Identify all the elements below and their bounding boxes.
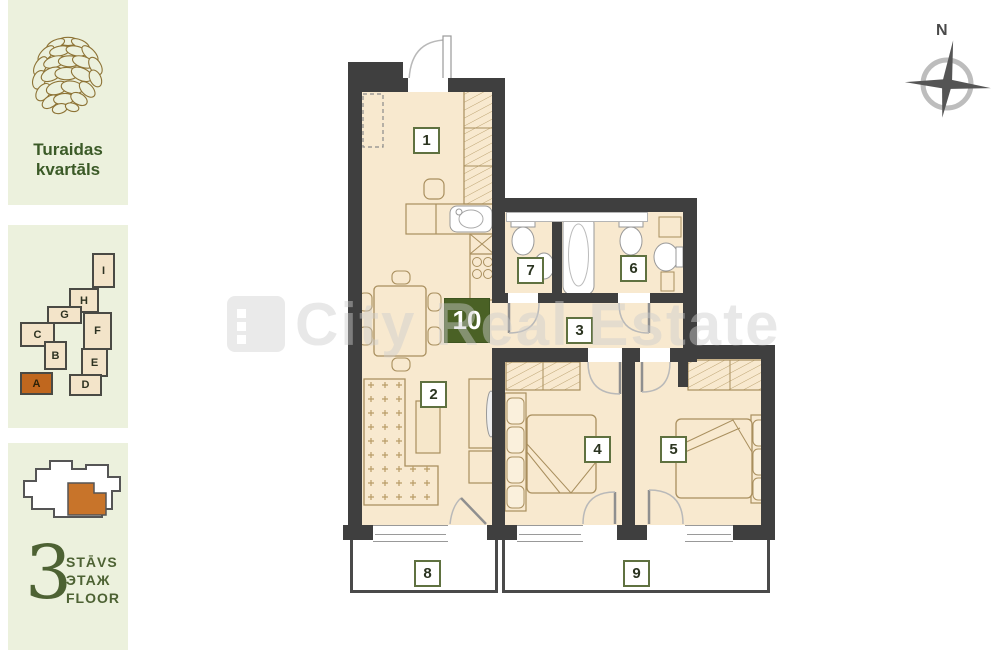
wardrobe-bedroom5 xyxy=(688,360,772,390)
floor-words: STĀVS ЭТАЖ FLOOR xyxy=(66,553,120,608)
wall-hall-right xyxy=(492,78,505,302)
wall-baths-top xyxy=(492,198,697,212)
hall-stool xyxy=(424,179,444,199)
balcony8-door-opening xyxy=(448,525,487,540)
compass-north-label: N xyxy=(936,22,948,40)
window-bed4 xyxy=(517,525,583,542)
toilet-bath xyxy=(619,219,643,255)
balcony-door-bedroom4 xyxy=(583,492,615,524)
balcony9-door-opening-a xyxy=(583,525,617,540)
kitchen-sink xyxy=(450,206,492,232)
wall-bed4-bed5 xyxy=(622,348,635,525)
floor-word-ru: ЭТАЖ xyxy=(66,571,120,589)
stove xyxy=(473,258,493,279)
wall-stub-bed5 xyxy=(678,359,688,387)
bathtub xyxy=(563,215,594,295)
balcony-door-living xyxy=(450,498,486,524)
bed-bedroom4 xyxy=(505,393,596,511)
entrance-opening xyxy=(408,78,448,92)
floor-word-en: FLOOR xyxy=(66,589,120,607)
window-living xyxy=(373,525,448,542)
wardrobe-hall xyxy=(464,90,495,204)
bath-cabinet-top xyxy=(659,217,681,237)
balcony9-door-opening-b xyxy=(647,525,685,540)
toilet-wc xyxy=(511,219,535,255)
sink-bath xyxy=(654,243,683,271)
floor-word-lv: STĀVS xyxy=(66,553,120,571)
coffee-table xyxy=(416,401,440,453)
bath-cabinet-bottom xyxy=(661,272,674,291)
sink-wc xyxy=(534,253,554,279)
wall-bottom-c xyxy=(617,525,647,540)
wall-right-lower xyxy=(761,345,775,540)
compass-rose-icon xyxy=(903,38,993,133)
wardrobe-bedroom4 xyxy=(506,362,580,390)
bath-niche xyxy=(506,212,648,222)
watermark-logo xyxy=(227,296,285,352)
dishwasher xyxy=(470,234,494,254)
window-bed5 xyxy=(685,525,733,542)
floorplan-page: Turaidas kvartāls IHGCBFEDA 3 STĀVS ЭТАЖ… xyxy=(0,0,1000,650)
wall-top-shaft xyxy=(348,62,403,78)
wall-living-bed4 xyxy=(492,348,505,525)
door-bedroom5 xyxy=(642,362,670,392)
wall-bottom-d xyxy=(733,525,775,540)
watermark-text: City Real Estate xyxy=(295,290,815,359)
wall-wc-bath xyxy=(552,212,562,295)
wall-bottom-a xyxy=(343,525,373,540)
closet-dashed xyxy=(363,94,383,147)
wall-bottom-b xyxy=(487,525,517,540)
door-bedroom4 xyxy=(588,362,620,394)
bed-bedroom5 xyxy=(676,415,772,503)
